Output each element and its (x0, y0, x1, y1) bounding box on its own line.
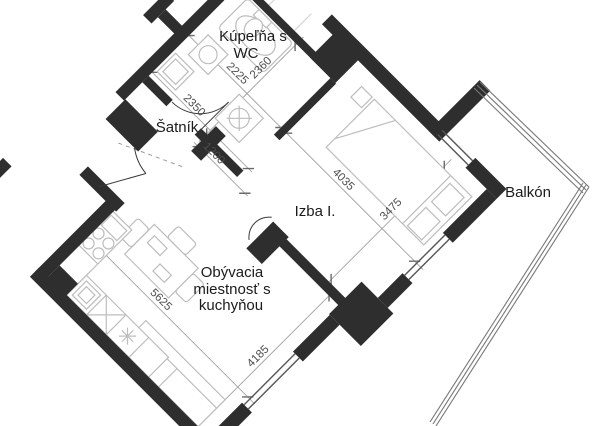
wall-partition-living-room1 (275, 234, 356, 315)
duct-divider (294, 14, 311, 31)
wall-entry-jamb (106, 99, 158, 151)
room-label-living-line2: miestnosť s (193, 281, 270, 298)
room-label-room1: Izba I. (295, 203, 336, 220)
entrance-door-arc (127, 148, 152, 173)
duct-divider (269, 0, 286, 5)
room1-furniture (313, 86, 471, 244)
floor-plan-drawing: 2225 2360 2350 1200 4035 3475 5625 4185 … (0, 0, 600, 426)
wall-se-mid (378, 273, 413, 308)
rotated-plan: 2225 2360 2350 1200 4035 3475 5625 4185 (0, 0, 553, 426)
balcony-door-window (442, 130, 472, 160)
wall-room1-west (274, 78, 336, 140)
room-label-wardrobe: Šatník (156, 119, 199, 136)
room-label-bathroom-line2: WC (234, 45, 259, 62)
floor-plan-canvas: 2225 2360 2350 1200 4035 3475 5625 4185 … (0, 0, 600, 426)
dim-wardrobe-a: 2350 (181, 92, 208, 119)
wall-se-jog-block (329, 282, 393, 346)
room-label-balcony: Balkón (505, 184, 551, 201)
room-label-living-line3: kuchyňou (199, 297, 263, 314)
wall-neighbor-stub (0, 158, 12, 182)
balcony-railing (430, 82, 589, 426)
room-label-bathroom-line1: Kúpeľňa s (219, 28, 287, 45)
wall-se-living-upper (293, 315, 340, 362)
room-label-living-line1: Obývacia (201, 264, 264, 281)
